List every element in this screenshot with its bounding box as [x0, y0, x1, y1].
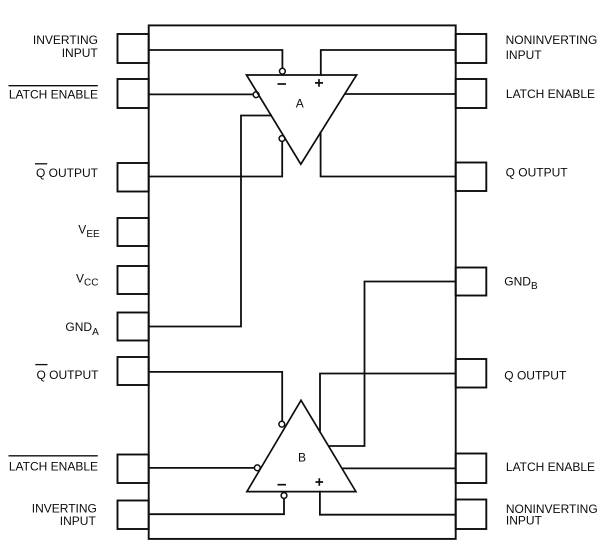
svg-text:Q OUTPUT: Q OUTPUT	[504, 368, 567, 382]
svg-text:GNDA: GNDA	[65, 320, 99, 338]
svg-text:VCC: VCC	[76, 271, 98, 288]
svg-text:INPUT: INPUT	[506, 514, 543, 528]
svg-text:GNDB: GNDB	[504, 274, 538, 292]
svg-text:INPUT: INPUT	[62, 46, 99, 60]
svg-text:VEE: VEE	[78, 223, 100, 240]
svg-text:NONINVERTING: NONINVERTING	[506, 33, 598, 47]
svg-text:LATCH ENABLE: LATCH ENABLE	[9, 87, 98, 101]
svg-text:LATCH ENABLE: LATCH ENABLE	[9, 459, 98, 473]
svg-text:A: A	[296, 97, 304, 111]
svg-text:LATCH ENABLE: LATCH ENABLE	[506, 87, 595, 101]
svg-text:Q OUTPUT: Q OUTPUT	[37, 368, 100, 382]
svg-text:Q OUTPUT: Q OUTPUT	[36, 166, 99, 180]
svg-text:B: B	[298, 450, 306, 464]
svg-text:INPUT: INPUT	[506, 48, 543, 62]
svg-text:INPUT: INPUT	[60, 514, 97, 528]
svg-text:Q OUTPUT: Q OUTPUT	[506, 166, 569, 180]
svg-text:LATCH ENABLE: LATCH ENABLE	[506, 460, 595, 474]
svg-text:INVERTING: INVERTING	[33, 33, 98, 47]
